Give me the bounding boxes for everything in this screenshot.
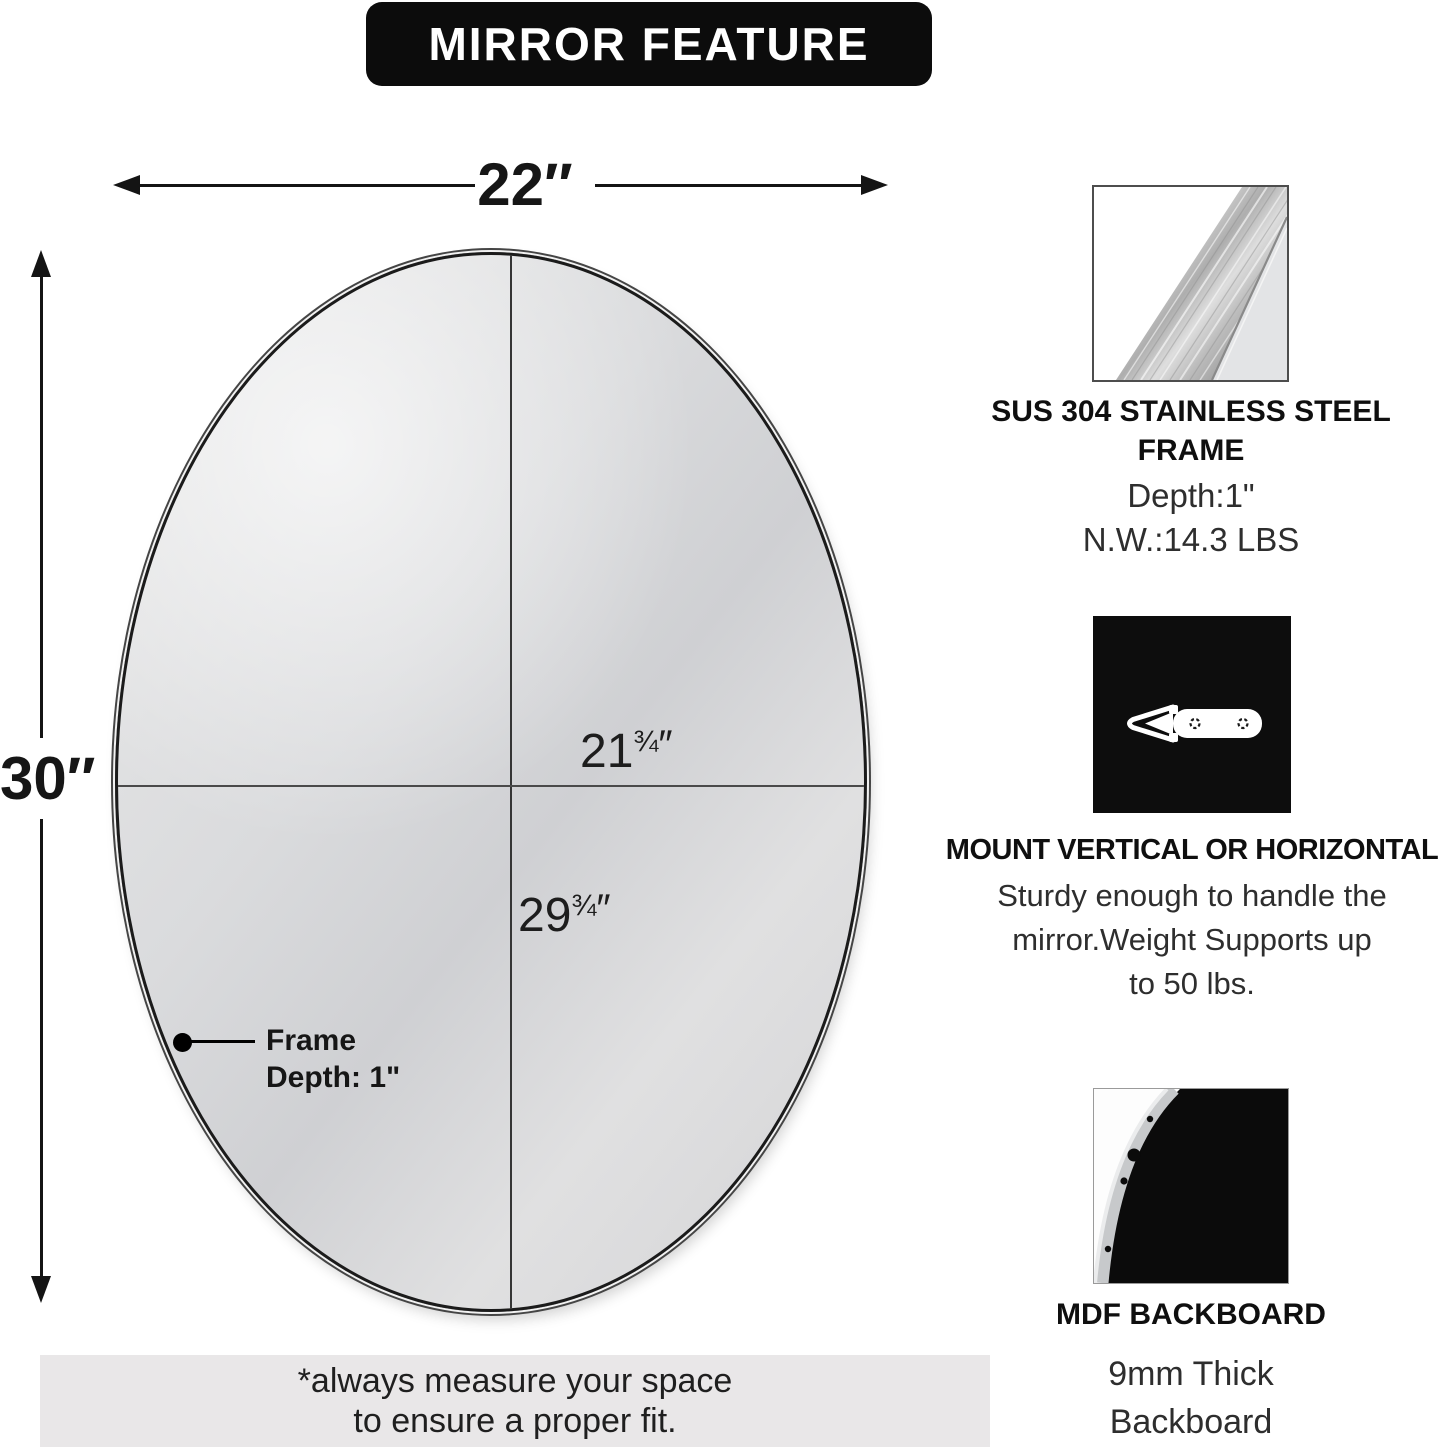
inner-width-fraction: ¾ [633,725,658,758]
backboard-body-line2: Backboard [991,1398,1391,1446]
inner-height-label: 29¾″ [518,887,609,943]
backboard-corner-icon [1094,1089,1288,1283]
brushed-steel-icon [1094,187,1287,380]
inner-width-unit: ″ [658,723,670,767]
vertical-crosshair-line [510,255,512,1309]
width-dimension-label: 22″ [455,150,595,219]
mounting-bracket-image [1093,616,1291,813]
mount-body-line1: Sturdy enough to handle the [932,874,1445,918]
feature-body-stainless: Depth:1" N.W.:14.3 LBS [991,474,1391,562]
height-arrowhead-down [31,1276,51,1303]
inner-height-fraction: ¾ [571,889,596,922]
mount-body-line3: to 50 lbs. [932,962,1445,1006]
mirror-feature-infographic: MIRROR FEATURE 22″ 30″ 21¾″ 29¾″ Frame D… [0,0,1445,1455]
inner-width-label: 21¾″ [580,723,671,779]
stainless-weight-text: N.W.:14.3 LBS [991,518,1391,562]
frame-depth-callout-dot [173,1033,192,1052]
stainless-depth-text: Depth:1" [991,474,1391,518]
width-arrowhead-right [861,175,888,195]
oval-mirror-diagram: 21¾″ 29¾″ [115,252,867,1312]
stainless-steel-swatch-image [1092,185,1289,382]
mdf-backboard-image [1093,1088,1289,1284]
frame-depth-line1: Frame [266,1022,400,1059]
feature-body-mount: Sturdy enough to handle the mirror.Weigh… [932,874,1445,1006]
mount-body-line2: mirror.Weight Supports up [932,918,1445,962]
backboard-body-line1: 9mm Thick [991,1350,1391,1398]
inner-height-unit: ″ [596,887,608,931]
title-banner: MIRROR FEATURE [366,2,932,86]
feature-title-backboard: MDF BACKBOARD [991,1298,1391,1332]
inner-height-whole: 29 [518,889,571,942]
height-dimension-label: 30″ [0,738,92,819]
page-title: MIRROR FEATURE [428,17,869,71]
feature-title-mount: MOUNT VERTICAL OR HORIZONTAL [925,834,1445,867]
note-line1: *always measure your space [298,1361,733,1401]
width-dimension-line-right [595,184,861,187]
measure-note-bar: *always measure your space to ensure a p… [40,1355,990,1447]
wall-mount-bracket-icon [1093,616,1291,813]
horizontal-crosshair-line [118,785,864,787]
note-line2: to ensure a proper fit. [353,1401,676,1441]
feature-title-stainless: SUS 304 STAINLESS STEEL FRAME [991,392,1391,470]
frame-depth-callout-line [191,1040,255,1043]
frame-depth-callout-text: Frame Depth: 1" [266,1022,400,1096]
inner-width-whole: 21 [580,725,633,778]
feature-body-backboard: 9mm Thick Backboard [991,1350,1391,1446]
frame-depth-line2: Depth: 1" [266,1059,400,1096]
width-dimension-line-left [136,184,475,187]
